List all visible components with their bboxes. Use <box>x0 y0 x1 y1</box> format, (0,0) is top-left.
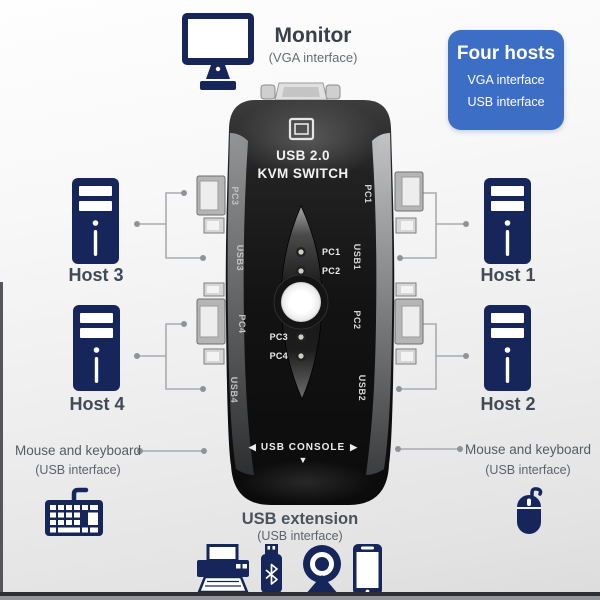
led-label-pc2: PC2 <box>322 266 340 276</box>
photo-left-edge <box>0 282 3 600</box>
usb-extension-interface: (USB interface) <box>228 529 372 543</box>
led-label-pc3: PC3 <box>264 332 288 342</box>
monitor-interface-label: (VGA interface) <box>252 50 374 65</box>
vga-port-pc2 <box>395 299 423 344</box>
device-model-line2: KVM SWITCH <box>233 165 373 183</box>
port-label-usb3: USB3 <box>234 236 246 280</box>
connector-line-host4 <box>137 324 203 389</box>
mouse-icon <box>516 486 544 536</box>
usb-extension-label: USB extension <box>228 510 372 529</box>
port-label-pc3: PC3 <box>229 174 241 218</box>
host2-tower-icon <box>483 304 532 392</box>
device-model-line1: USB 2.0 <box>233 147 373 165</box>
console-down-arrow-icon: ▼ <box>240 455 366 465</box>
photo-bottom-edge-light <box>0 596 600 600</box>
device-model-label: USB 2.0 KVM SWITCH <box>233 147 373 183</box>
badge-vga-line: VGA interface <box>448 73 564 87</box>
webcam-icon <box>298 543 346 595</box>
port-label-usb1: USB1 <box>351 235 363 279</box>
four-hosts-badge: Four hosts VGA interface USB interface <box>448 30 564 130</box>
connector-line-host3 <box>137 193 203 258</box>
usb-port-usb4 <box>204 349 224 364</box>
console-left-arrow-icon: ◀ <box>249 442 256 452</box>
host1-label: Host 1 <box>466 265 550 286</box>
mouse-keyboard-left-label: Mouse and keyboard <box>13 443 143 458</box>
port-label-pc2: PC2 <box>351 298 363 342</box>
badge-usb-line: USB interface <box>448 95 564 109</box>
printer-icon <box>195 544 251 594</box>
keyboard-icon <box>44 487 104 537</box>
led-label-pc1: PC1 <box>322 247 340 257</box>
host3-tower-icon <box>71 177 120 265</box>
monitor-label: Monitor <box>258 24 368 48</box>
usb-port-usb2 <box>396 349 416 364</box>
host3-label: Host 3 <box>54 265 138 286</box>
host1-tower-icon <box>483 177 532 265</box>
host4-label: Host 4 <box>55 394 139 415</box>
vga-port-pc3 <box>197 176 225 215</box>
console-right-arrow-icon: ▶ <box>350 442 357 452</box>
port-label-usb2: USB2 <box>356 366 368 410</box>
usb-port-usb3 <box>204 218 224 233</box>
usb-console-label: ◀USB CONSOLE▶ <box>240 442 366 453</box>
mouse-keyboard-left-interface: (USB interface) <box>13 463 143 477</box>
smartphone-icon <box>352 543 383 596</box>
device-bottom-sheen <box>240 460 372 504</box>
mouse-keyboard-right-interface: (USB interface) <box>462 463 594 477</box>
kvm-diagram: Monitor (VGA interface) Four hosts VGA i… <box>0 0 600 600</box>
selector-knob <box>281 282 321 322</box>
host2-label: Host 2 <box>466 394 550 415</box>
led-label-pc4: PC4 <box>264 351 288 361</box>
host4-tower-icon <box>72 304 121 392</box>
port-label-pc1: PC1 <box>362 172 374 216</box>
usb-port-usb1 <box>396 218 416 233</box>
port-label-usb4: USB4 <box>228 368 240 412</box>
monitor-icon <box>181 12 255 94</box>
usb-flash-drive-icon <box>256 543 287 595</box>
usb-port-right-mid <box>396 283 416 296</box>
port-label-pc4: PC4 <box>236 302 248 346</box>
vga-port-pc4 <box>197 299 225 344</box>
badge-title: Four hosts <box>448 43 564 65</box>
console-text: USB CONSOLE <box>261 442 345 453</box>
vga-port-pc1 <box>395 172 423 211</box>
mouse-keyboard-right-label: Mouse and keyboard <box>462 442 594 457</box>
usb-port-left-mid <box>204 283 224 296</box>
